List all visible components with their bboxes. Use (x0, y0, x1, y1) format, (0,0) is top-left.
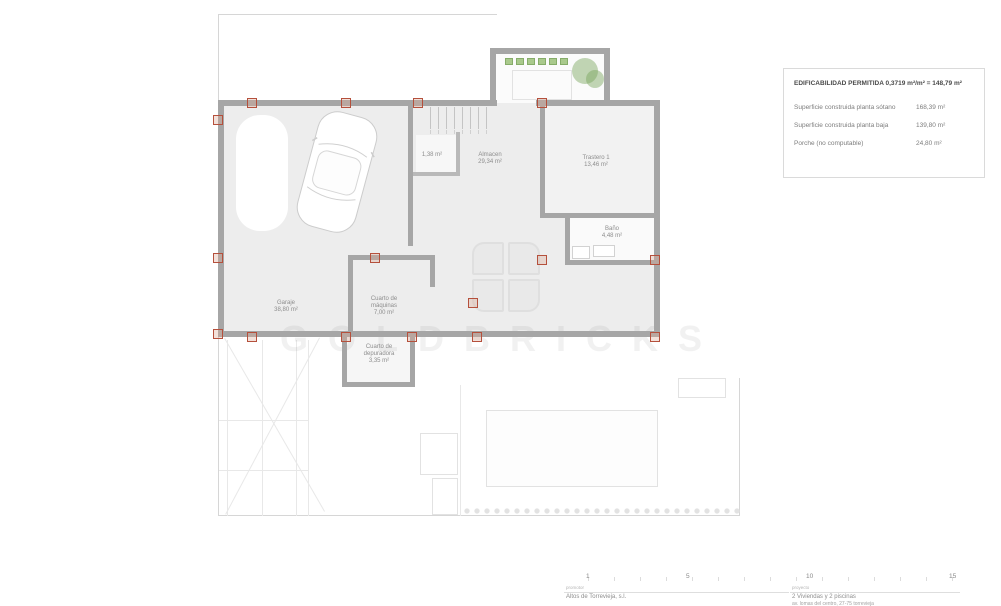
floor-plan-sheet: GOLDBRICKS (0, 0, 1001, 606)
legend-row-value: 24,80 m² (916, 140, 974, 148)
column-marker (213, 115, 223, 125)
legend-row: Superficie construida planta baja 139,80… (794, 122, 974, 130)
room-name: Trastero 1 (568, 155, 624, 162)
scale-tick-label: 1 (586, 573, 590, 580)
partition-wall (413, 172, 460, 176)
project-name: 2 Viviendas y 2 piscinas (792, 594, 856, 600)
room-label-bano: Baño 4,48 m² (590, 226, 634, 240)
overlay-line (227, 340, 228, 516)
column-marker (370, 253, 380, 263)
wc-fixture (593, 245, 615, 257)
hedge-strip (462, 504, 740, 517)
legend-row-label: Porche (no computable) (794, 140, 916, 148)
legend-row: Porche (no computable) 24,80 m² (794, 140, 974, 148)
room-area: 29,34 m² (462, 159, 518, 166)
wall (490, 48, 610, 54)
room-area: 38,80 m² (258, 307, 314, 314)
column-marker (650, 332, 660, 342)
legend-row: Superficie construida planta sótano 168,… (794, 104, 974, 112)
planter-icon (516, 58, 524, 65)
room-label-cuarto-depuradora: Cuarto de depuradora 3,35 m² (350, 344, 408, 365)
partition-wall (456, 132, 460, 176)
overlay-line (219, 470, 308, 471)
overlay-line (460, 385, 461, 516)
wall (604, 100, 660, 106)
overlay-line (308, 340, 309, 516)
wall (430, 255, 435, 287)
room-label-closet: 1,38 m² (412, 152, 452, 159)
watermark-logo (472, 242, 544, 316)
room-area: 13,46 m² (568, 162, 624, 169)
site-boundary-top (218, 14, 497, 15)
wall (490, 48, 496, 106)
overlay-rect (678, 378, 726, 398)
room-name: Almacen (462, 152, 518, 159)
room-area: 7,00 m² (360, 310, 408, 317)
column-marker (247, 332, 257, 342)
overlay-line (262, 340, 263, 516)
legend-row-value: 139,80 m² (916, 122, 974, 130)
column-marker (407, 332, 417, 342)
room-name: Cuarto de máquinas (360, 296, 408, 310)
legend-row-value: 168,39 m² (916, 104, 974, 112)
room-label-trastero: Trastero 1 13,46 m² (568, 155, 624, 169)
scale-bar (588, 577, 958, 581)
project-label: proyecto (792, 585, 809, 590)
room-label-garaje: Garaje 38,80 m² (258, 300, 314, 314)
parking-space-outline (236, 115, 288, 231)
column-marker (650, 255, 660, 265)
overlay-rect (432, 478, 458, 515)
wall (348, 255, 353, 337)
scale-tick-label: 10 (806, 573, 813, 580)
overlay-line (219, 420, 308, 421)
scale-tick-label: 5 (686, 573, 690, 580)
column-marker (213, 253, 223, 263)
column-marker (472, 332, 482, 342)
wall (342, 337, 347, 387)
legend-row-label: Superficie construida planta sótano (794, 104, 916, 112)
wall (536, 100, 610, 106)
room-name: Garaje (258, 300, 314, 307)
planter-icon (549, 58, 557, 65)
wall (218, 100, 224, 337)
legend-row-label: Superficie construida planta baja (794, 122, 916, 130)
column-marker (413, 98, 423, 108)
column-marker (468, 298, 478, 308)
buildability-legend: EDIFICABILIDAD PERMITIDA 0,3719 m²/m² = … (783, 68, 985, 178)
wall (540, 213, 655, 218)
promoter-label: promotor (566, 585, 584, 590)
room-label-cuarto-maquinas: Cuarto de máquinas 7,00 m² (360, 296, 408, 317)
wall (342, 382, 415, 387)
sink-fixture (572, 246, 590, 259)
room-name: Baño (590, 226, 634, 233)
planter-icon (560, 58, 568, 65)
planter-icon (505, 58, 513, 65)
wall (540, 106, 545, 218)
column-marker (537, 255, 547, 265)
wall (410, 337, 415, 387)
wall (654, 100, 660, 337)
plant-icon (586, 70, 604, 88)
wall (565, 218, 570, 265)
promoter-name: Altos de Torrevieja, s.l. (566, 594, 626, 600)
wall (218, 331, 660, 337)
titleblock-rule (564, 592, 789, 593)
legend-title: EDIFICABILIDAD PERMITIDA 0,3719 m²/m² = … (794, 80, 974, 88)
site-boundary-right (739, 378, 740, 516)
column-marker (247, 98, 257, 108)
staircase-ticks (430, 130, 494, 134)
patio-sketch (512, 70, 572, 100)
room-area: 1,38 m² (412, 152, 452, 159)
room-label-almacen: Almacen 29,34 m² (462, 152, 518, 166)
wall (408, 106, 413, 246)
pool-outline (486, 410, 658, 487)
titleblock-rule (790, 592, 960, 593)
staircase (430, 107, 494, 129)
column-marker (537, 98, 547, 108)
room-area: 3,35 m² (350, 358, 408, 365)
project-address: av. lomas del centro, 27-75 torrevieja (792, 601, 874, 606)
overlay-rect (420, 433, 458, 475)
wall (565, 260, 655, 265)
wall (604, 48, 610, 106)
room-area: 4,48 m² (590, 233, 634, 240)
planter-icon (538, 58, 546, 65)
column-marker (213, 329, 223, 339)
wall (348, 255, 435, 260)
overlay-line (296, 340, 297, 516)
column-marker (341, 332, 351, 342)
column-marker (341, 98, 351, 108)
room-name: Cuarto de depuradora (350, 344, 408, 358)
wall (218, 100, 497, 106)
scale-tick-label: 15 (949, 573, 956, 580)
planter-icon (527, 58, 535, 65)
